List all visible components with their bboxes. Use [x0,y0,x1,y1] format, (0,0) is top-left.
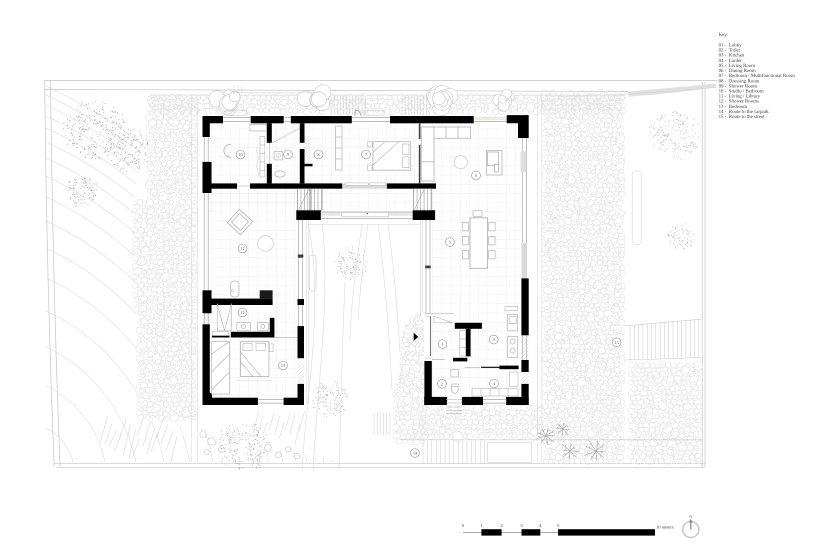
svg-text:10 meters: 10 meters [656,525,674,530]
svg-text:1: 1 [480,523,482,528]
svg-text:02 - Toilet: 02 - Toilet [719,48,741,53]
svg-text:2: 2 [441,381,443,386]
svg-text:12 - Shower Rooms: 12 - Shower Rooms [719,99,759,104]
svg-text:01 - Lobby: 01 - Lobby [719,43,742,48]
svg-text:10: 10 [238,152,242,157]
svg-text:15: 15 [614,340,618,345]
svg-text:12: 12 [240,310,244,315]
svg-text:9: 9 [287,152,289,157]
svg-text:N: N [689,514,692,519]
svg-text:13: 13 [281,363,285,368]
svg-text:1: 1 [441,342,443,347]
svg-text:5: 5 [449,240,451,245]
svg-text:3: 3 [520,523,523,528]
svg-text:5: 5 [557,523,560,528]
svg-text:11: 11 [240,246,244,251]
svg-text:09 - Shower Room: 09 - Shower Room [719,84,757,89]
svg-text:2: 2 [500,523,502,528]
svg-text:15 - Route to the street: 15 - Route to the street [719,114,765,119]
svg-text:03 - Kitchen: 03 - Kitchen [719,53,745,58]
svg-text:Key:: Key: [719,32,729,37]
svg-text:11 - Living / Library: 11 - Living / Library [719,94,761,99]
svg-text:4: 4 [539,523,542,528]
svg-text:06 - Dining Room: 06 - Dining Room [719,68,756,73]
svg-text:08 - Dressing Room: 08 - Dressing Room [719,79,760,84]
svg-text:04 - Larder: 04 - Larder [719,58,743,63]
svg-text:3: 3 [493,337,495,342]
svg-text:14 - Route to the carpark: 14 - Route to the carpark [719,109,769,114]
svg-text:05 - Living Room: 05 - Living Room [719,63,756,68]
svg-text:13 - Bedroom: 13 - Bedroom [719,104,747,109]
svg-text:07 - Bedroom / Multifunctiona: 07 - Bedroom / Multifunctional Room [719,73,795,78]
svg-text:0: 0 [462,523,465,528]
svg-text:8: 8 [317,152,319,157]
svg-text:10 - Studio / Bedroom: 10 - Studio / Bedroom [719,89,764,94]
